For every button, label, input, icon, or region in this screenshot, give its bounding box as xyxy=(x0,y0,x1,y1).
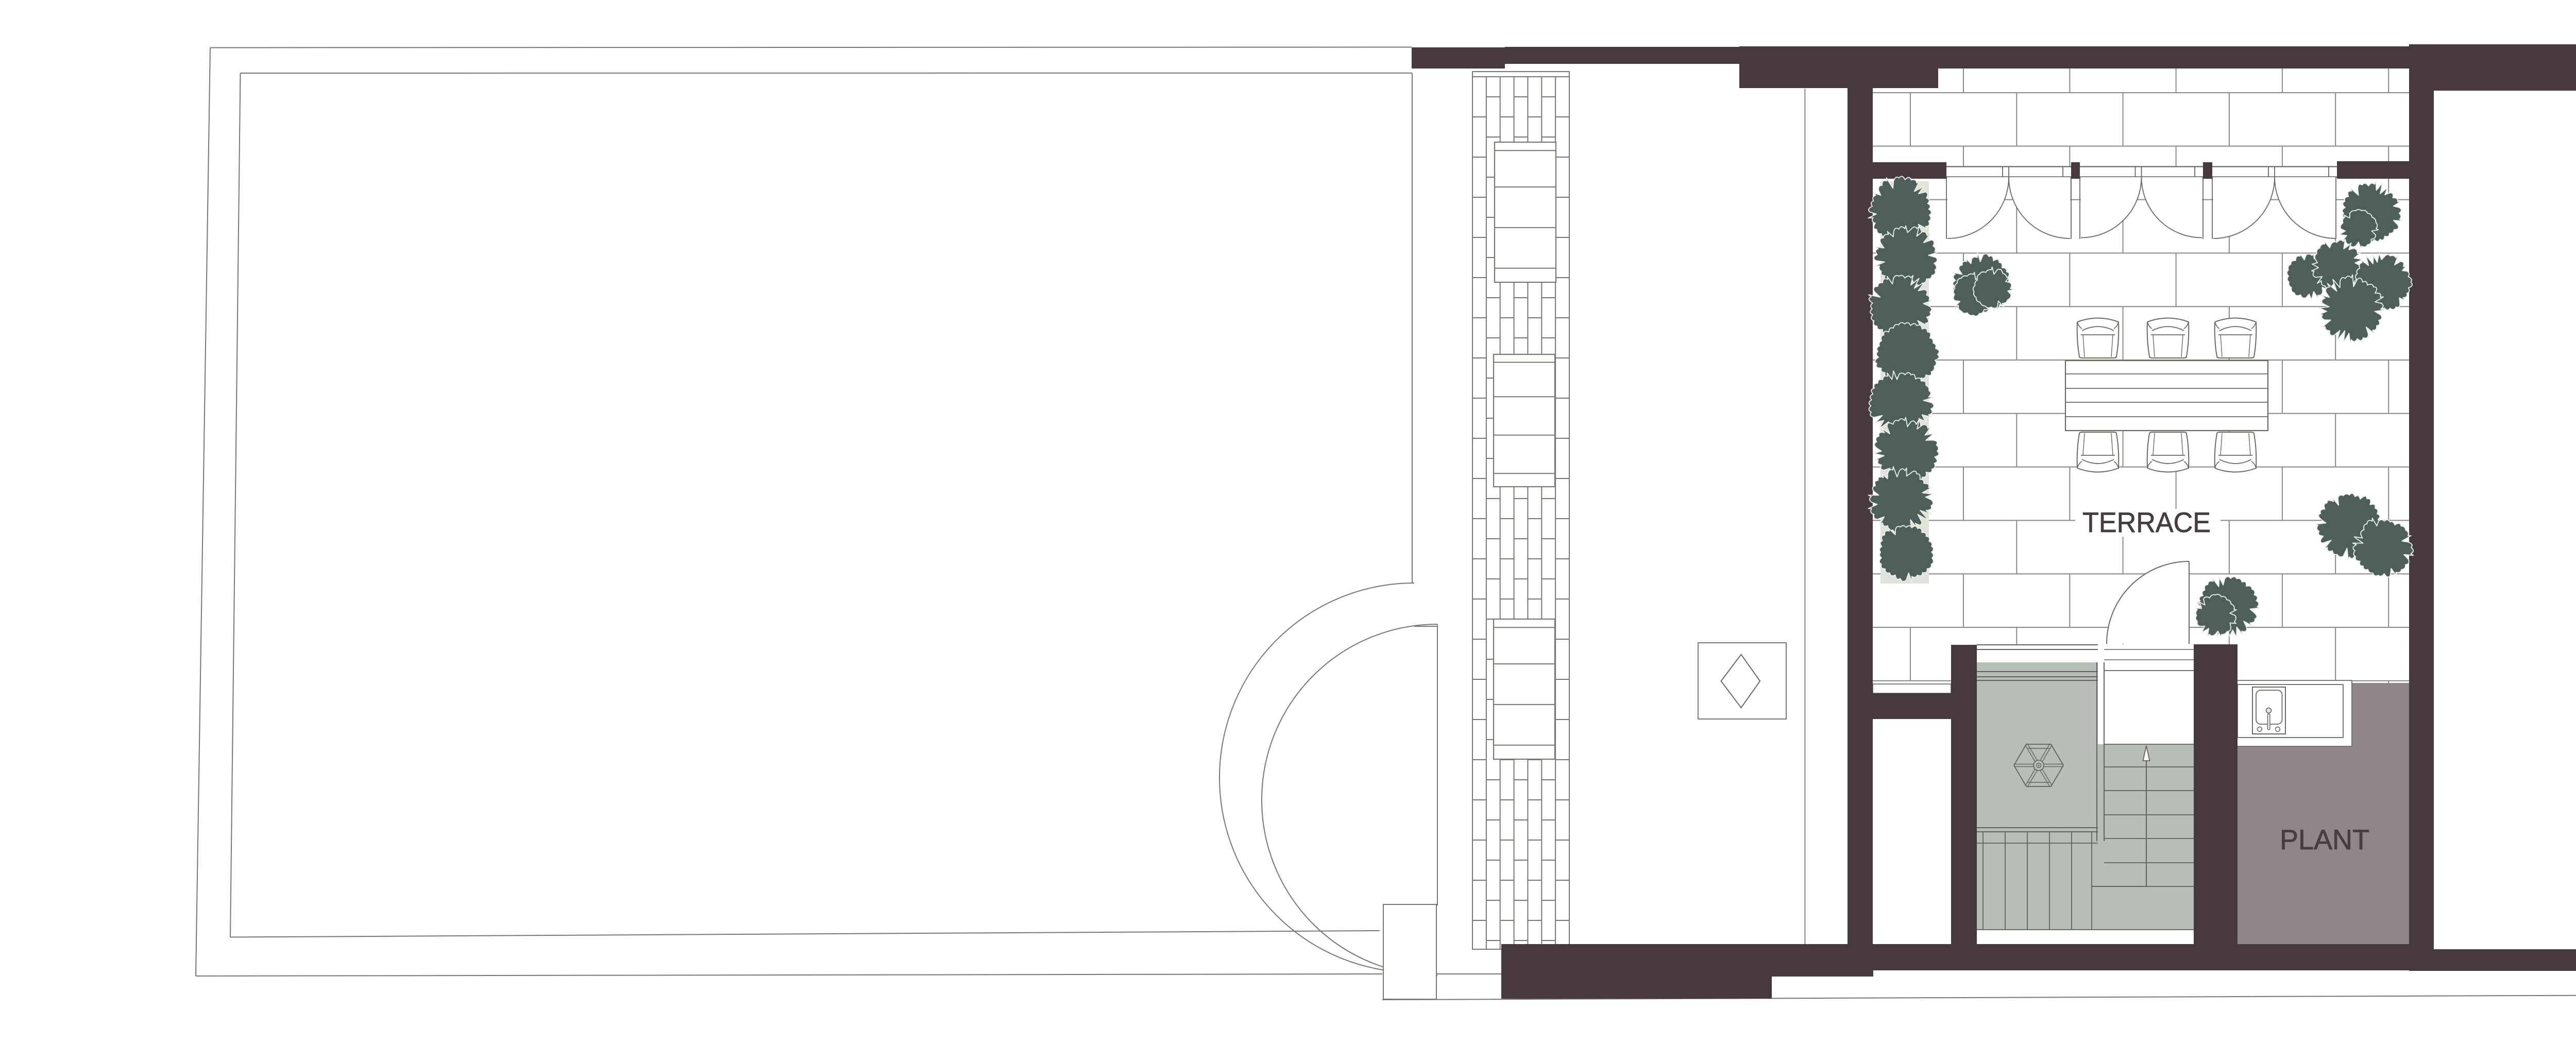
svg-text:PLANT: PLANT xyxy=(2280,824,2369,855)
svg-text:TERRACE: TERRACE xyxy=(2082,506,2211,538)
